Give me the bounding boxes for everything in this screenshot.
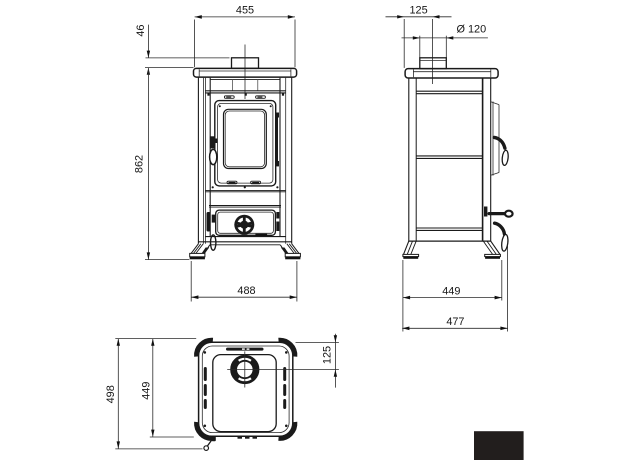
svg-text:498: 498 bbox=[105, 385, 117, 403]
svg-text:Ø 120: Ø 120 bbox=[457, 24, 487, 36]
svg-text:488: 488 bbox=[237, 285, 255, 297]
svg-text:449: 449 bbox=[442, 285, 460, 297]
svg-text:455: 455 bbox=[236, 5, 254, 17]
svg-text:125: 125 bbox=[410, 5, 428, 17]
svg-text:477: 477 bbox=[446, 316, 464, 328]
svg-text:862: 862 bbox=[134, 155, 146, 173]
svg-text:449: 449 bbox=[141, 382, 153, 400]
svg-text:125: 125 bbox=[321, 346, 333, 364]
svg-text:46: 46 bbox=[135, 25, 147, 37]
